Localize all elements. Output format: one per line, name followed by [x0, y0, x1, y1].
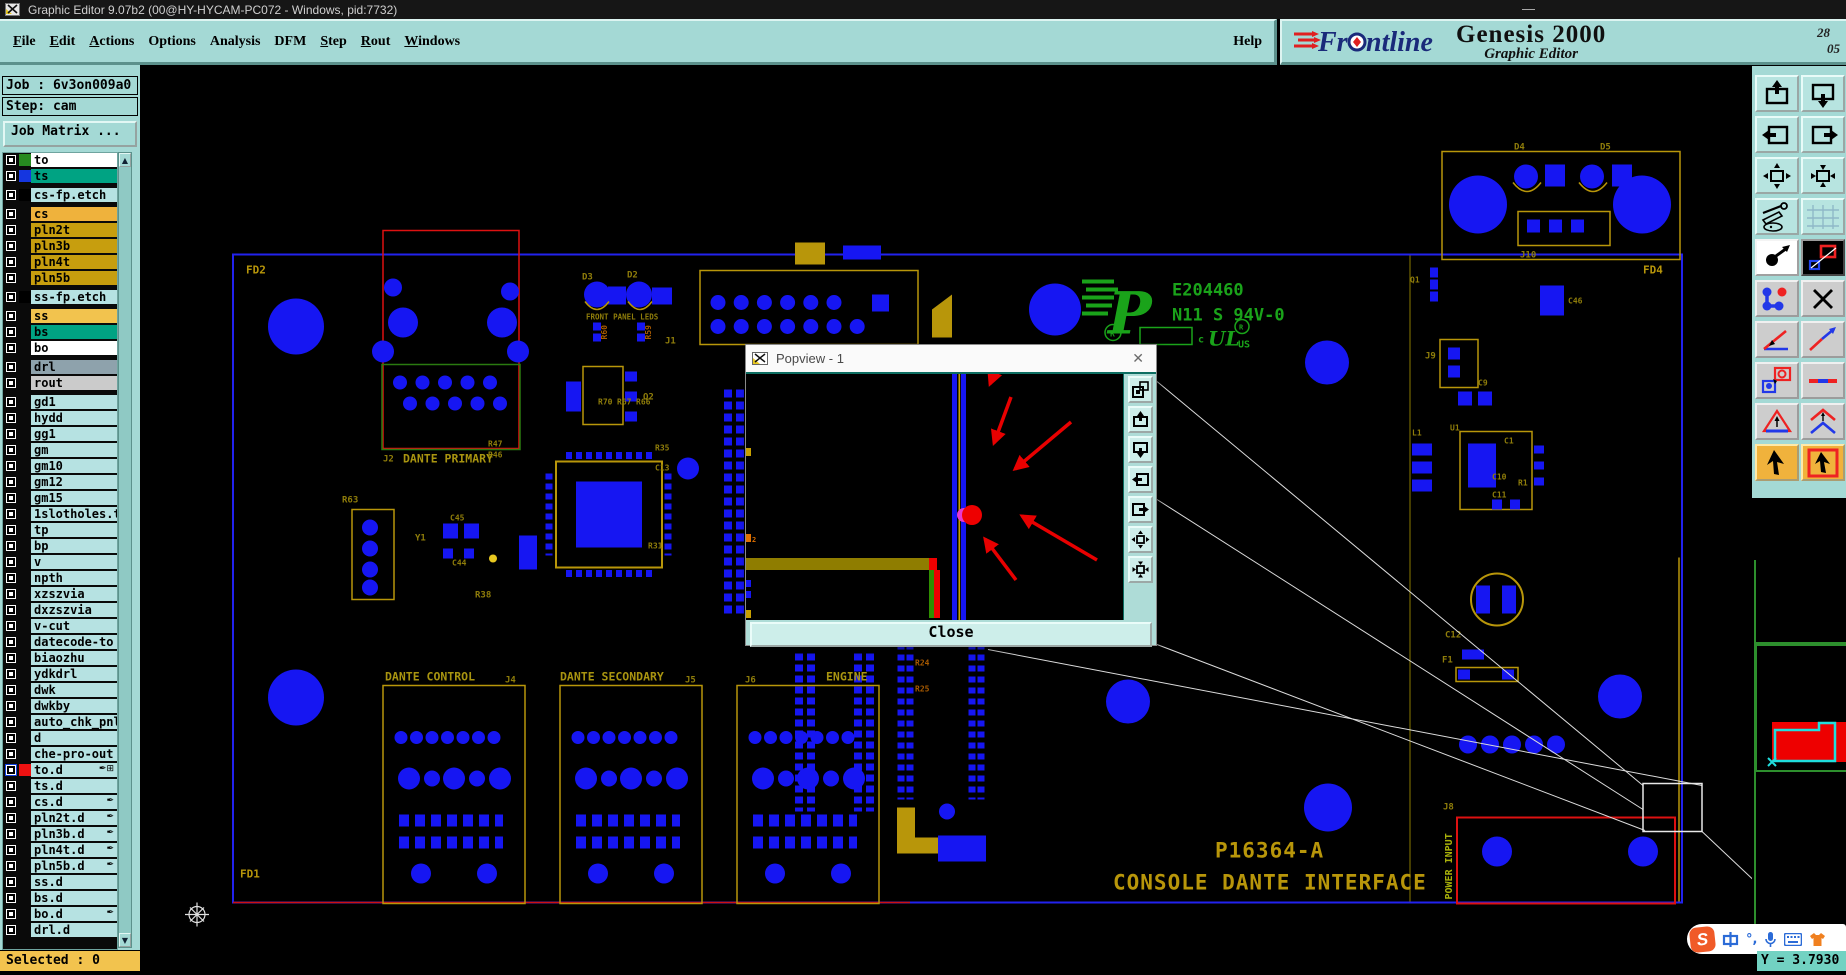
- layer-name[interactable]: cs: [31, 207, 117, 221]
- svg-text:R31: R31: [648, 542, 663, 551]
- svg-text:J4: J4: [505, 676, 516, 686]
- layer-row-icons: ✒: [106, 860, 114, 870]
- brand-panel: Fr ntline Genesis 2000 Graphic Editor 28…: [1280, 19, 1846, 65]
- layer-row[interactable]: v-cut: [3, 619, 117, 633]
- pcb-label-fd4: FD4: [1643, 264, 1663, 277]
- layer-name[interactable]: gd1: [31, 395, 117, 409]
- svg-text:FRONT PANEL LEDS: FRONT PANEL LEDS: [586, 313, 659, 322]
- layer-color-swatch[interactable]: [19, 342, 31, 354]
- left-components: R63 Y1 C45 C44 R38: [342, 496, 537, 601]
- layer-name[interactable]: bs.d: [31, 891, 117, 905]
- layer-name[interactable]: bo.d: [31, 907, 117, 921]
- menu-item[interactable]: Analysis: [210, 34, 261, 50]
- keyboard-icon[interactable]: [1784, 933, 1802, 946]
- layer-list: to ts cs-fp.etch cs pln2t pln3b: [2, 152, 118, 950]
- layer-name[interactable]: ss: [31, 309, 117, 323]
- layer-visibility-checkbox[interactable]: [5, 924, 17, 936]
- netlist-button[interactable]: [1755, 280, 1799, 317]
- layer-visibility-checkbox[interactable]: [5, 620, 17, 632]
- layer-name[interactable]: che-pro-out: [31, 747, 117, 761]
- menu-item[interactable]: File: [13, 34, 36, 50]
- layer-row[interactable]: datecode-to: [3, 635, 117, 649]
- layer-color-swatch[interactable]: [19, 189, 31, 201]
- layer-color-swatch[interactable]: [19, 684, 31, 696]
- layer-color-swatch[interactable]: [19, 652, 31, 664]
- svg-text:C44: C44: [452, 559, 467, 568]
- layer-row[interactable]: bs: [3, 325, 117, 339]
- microphone-icon[interactable]: [1764, 931, 1777, 948]
- layer-row[interactable]: rout: [3, 376, 117, 390]
- layer-name[interactable]: pln4t.d: [31, 843, 117, 857]
- svg-text:J5: J5: [685, 676, 696, 686]
- layer-visibility-checkbox[interactable]: [5, 208, 17, 220]
- shift-down-button[interactable]: [1128, 436, 1153, 463]
- sogou-logo-icon[interactable]: S: [1689, 925, 1716, 952]
- layer-name[interactable]: cs-fp.etch: [31, 188, 117, 202]
- layer-visibility-checkbox[interactable]: [5, 460, 17, 472]
- layer-color-swatch[interactable]: [19, 524, 31, 536]
- layer-visibility-checkbox[interactable]: [5, 170, 17, 182]
- layer-color-swatch[interactable]: [19, 812, 31, 824]
- layer-color-swatch[interactable]: [19, 326, 31, 338]
- menu-item[interactable]: Step: [320, 34, 346, 50]
- power-input-connector: J8 POWER INPUT: [1443, 803, 1675, 904]
- layer-color-swatch[interactable]: [19, 240, 31, 252]
- layer-visibility-checkbox[interactable]: [5, 556, 17, 568]
- popview-titlebar[interactable]: Popview - 1 ✕: [746, 345, 1156, 374]
- layer-name[interactable]: pln2t: [31, 223, 117, 237]
- layer-name[interactable]: gm10: [31, 459, 117, 473]
- layer-visibility-checkbox[interactable]: [5, 700, 17, 712]
- layer-row[interactable]: pln2t: [3, 223, 117, 237]
- ul-mark-block: P R E204460 N11 S 94V-0 c UL R US: [1082, 280, 1285, 351]
- layer-name[interactable]: gm15: [31, 491, 117, 505]
- layer-color-swatch[interactable]: [19, 764, 31, 776]
- layer-color-swatch[interactable]: [19, 908, 31, 920]
- menu-item-help[interactable]: Help: [1233, 34, 1262, 50]
- layer-color-swatch[interactable]: [19, 256, 31, 268]
- layer-name[interactable]: pln3b.d: [31, 827, 117, 841]
- menu-item[interactable]: Actions: [89, 34, 134, 50]
- zoom-area-button[interactable]: [1755, 239, 1799, 276]
- layer-row-icons: ✒: [106, 844, 114, 854]
- layer-visibility-checkbox[interactable]: [5, 154, 17, 166]
- layer-color-swatch[interactable]: [19, 224, 31, 236]
- layer-visibility-checkbox[interactable]: [5, 189, 17, 201]
- layer-row[interactable]: gm10: [3, 459, 117, 473]
- annotation-arrows: [985, 374, 1097, 580]
- layer-name[interactable]: ydkdrl: [31, 667, 117, 681]
- layer-visibility-checkbox[interactable]: [5, 684, 17, 696]
- layer-color-swatch[interactable]: [19, 796, 31, 808]
- layer-color-swatch[interactable]: [19, 272, 31, 284]
- layer-list-scrollbar[interactable]: ▲ ▼: [118, 152, 132, 948]
- layer-row[interactable]: dxzszvia: [3, 603, 117, 617]
- layer-color-swatch[interactable]: [19, 924, 31, 936]
- layer-color-swatch[interactable]: [19, 154, 31, 166]
- layer-row[interactable]: v: [3, 555, 117, 569]
- shift-up-button[interactable]: [1755, 75, 1799, 112]
- q2-component: Q2: [566, 367, 654, 425]
- layer-row[interactable]: tp: [3, 523, 117, 537]
- layer-color-swatch[interactable]: [19, 860, 31, 872]
- layer-visibility-checkbox[interactable]: [5, 876, 17, 888]
- right-panel: [1752, 66, 1846, 971]
- layer-visibility-checkbox[interactable]: [5, 844, 17, 856]
- layer-visibility-checkbox[interactable]: [5, 396, 17, 408]
- layer-name[interactable]: v-cut: [31, 619, 117, 633]
- layer-visibility-checkbox[interactable]: [5, 732, 17, 744]
- svg-text:J9: J9: [1425, 352, 1436, 362]
- layer-row[interactable]: ss: [3, 309, 117, 323]
- svg-text:R38: R38: [475, 591, 491, 601]
- layer-color-swatch[interactable]: [19, 716, 31, 728]
- svg-text:DANTE PRIMARY: DANTE PRIMARY: [403, 452, 493, 466]
- layer-color-swatch[interactable]: [19, 170, 31, 182]
- svg-text:D3: D3: [582, 273, 593, 283]
- origin-marker-icon: [185, 903, 209, 927]
- right-toolbar: [1752, 66, 1846, 498]
- layer-name[interactable]: pln5b.d: [31, 859, 117, 873]
- menu-item[interactable]: DFM: [274, 34, 306, 50]
- layer-name[interactable]: ts.d: [31, 779, 117, 793]
- svg-text:ntline: ntline: [1366, 27, 1433, 58]
- app-icon: [5, 3, 20, 16]
- layer-row[interactable]: cs: [3, 207, 117, 221]
- layer-row[interactable]: hydd: [3, 411, 117, 425]
- clear-marks-button[interactable]: [1801, 280, 1845, 317]
- shift-down-button[interactable]: [1801, 75, 1845, 112]
- layer-color-swatch[interactable]: [19, 668, 31, 680]
- layer-color-swatch[interactable]: [19, 208, 31, 220]
- layer-name[interactable]: cs.d: [31, 795, 117, 809]
- layer-visibility-checkbox[interactable]: [5, 588, 17, 600]
- window-title: Graphic Editor 9.07b2 (00@HY-HYCAM-PC072…: [28, 3, 397, 17]
- top-right-module: D4 D5 J10: [1442, 143, 1680, 261]
- menu-item[interactable]: Edit: [50, 34, 76, 50]
- layer-row[interactable]: to: [3, 153, 117, 167]
- layer-visibility-checkbox[interactable]: [5, 492, 17, 504]
- layer-row[interactable]: gm12: [3, 475, 117, 489]
- layer-name[interactable]: v: [31, 555, 117, 569]
- layer-color-swatch[interactable]: [19, 572, 31, 584]
- popview-window-icon: [752, 352, 768, 365]
- layer-color-swatch[interactable]: [19, 396, 31, 408]
- layer-color-swatch[interactable]: [19, 460, 31, 472]
- svg-text:Fr: Fr: [1317, 27, 1349, 58]
- zoom-contract-button[interactable]: [1128, 556, 1153, 583]
- layer-row[interactable]: gg1: [3, 427, 117, 441]
- layer-visibility-checkbox[interactable]: [5, 652, 17, 664]
- layer-visibility-checkbox[interactable]: [5, 908, 17, 920]
- layer-row-icons: ✒: [106, 908, 114, 918]
- layer-name[interactable]: biaozhu: [31, 651, 117, 665]
- layer-name[interactable]: bs: [31, 325, 117, 339]
- layer-row[interactable]: npth: [3, 571, 117, 585]
- layer-row[interactable]: pln4t: [3, 255, 117, 269]
- layer-color-swatch[interactable]: [19, 780, 31, 792]
- layer-name[interactable]: bp: [31, 539, 117, 553]
- menu-item[interactable]: Rout: [361, 34, 391, 50]
- grid-button[interactable]: [1801, 198, 1845, 235]
- front-panel-leds: D3 D2 FRONT PANEL LEDS R60 R59 J1: [582, 271, 676, 347]
- skin-shirt-icon[interactable]: [1809, 932, 1826, 947]
- layer-visibility-checkbox[interactable]: [5, 224, 17, 236]
- layer-visibility-checkbox[interactable]: [5, 310, 17, 322]
- layer-name[interactable]: gg1: [31, 427, 117, 441]
- layer-name[interactable]: pln4t: [31, 255, 117, 269]
- layer-color-swatch[interactable]: [19, 828, 31, 840]
- layer-visibility-checkbox[interactable]: [5, 604, 17, 616]
- layer-row[interactable]: drl: [3, 360, 117, 374]
- layer-visibility-checkbox[interactable]: [5, 812, 17, 824]
- layer-visibility-checkbox[interactable]: [5, 796, 17, 808]
- shift-right-button[interactable]: [1801, 116, 1845, 153]
- overview-panel: [1752, 560, 1846, 971]
- layer-name[interactable]: dwkby: [31, 699, 117, 713]
- popview-canvas[interactable]: 2: [746, 374, 1124, 620]
- layer-color-swatch[interactable]: [19, 636, 31, 648]
- layer-row[interactable]: 1slotholes.t: [3, 507, 117, 521]
- svg-text:D5: D5: [1600, 143, 1611, 153]
- layer-row-icons: ✒⊞: [99, 764, 114, 774]
- scroll-up-icon[interactable]: ▲: [119, 153, 131, 167]
- minimize-button[interactable]: —: [1522, 1, 1535, 16]
- select-cursor-boxed-button[interactable]: [1801, 444, 1845, 481]
- contract-view-button[interactable]: [1801, 157, 1845, 194]
- layer-row[interactable]: d: [3, 731, 117, 745]
- layer-visibility-checkbox[interactable]: [5, 780, 17, 792]
- layer-row[interactable]: pln2t.d ✒: [3, 811, 117, 825]
- layer-row[interactable]: pln4t.d ✒: [3, 843, 117, 857]
- layer-name[interactable]: bo: [31, 341, 117, 355]
- segment-button[interactable]: [1801, 362, 1845, 399]
- layer-name[interactable]: xzszvia: [31, 587, 117, 601]
- layer-row[interactable]: xzszvia: [3, 587, 117, 601]
- menu-item[interactable]: Windows: [404, 34, 460, 50]
- svg-text:J10: J10: [1520, 251, 1536, 261]
- layer-row[interactable]: che-pro-out: [3, 747, 117, 761]
- layer-name[interactable]: ss-fp.etch: [31, 290, 117, 304]
- layer-row-icons: ✒: [106, 812, 114, 822]
- layer-visibility-checkbox[interactable]: [5, 668, 17, 680]
- layer-name[interactable]: tp: [31, 523, 117, 537]
- layer-name[interactable]: drl.d: [31, 923, 117, 937]
- y-coordinate-readout: Y = 3.7930: [1757, 951, 1846, 971]
- close-icon[interactable]: ✕: [1132, 350, 1144, 367]
- layer-name[interactable]: 1slotholes.t: [31, 507, 117, 521]
- layer-visibility-checkbox[interactable]: [5, 428, 17, 440]
- layer-visibility-checkbox[interactable]: [5, 764, 17, 776]
- layer-color-swatch[interactable]: [19, 892, 31, 904]
- highlight-dot: [957, 505, 982, 525]
- truesize-chevron-button[interactable]: [1801, 403, 1845, 440]
- layer-name[interactable]: pln2t.d: [31, 811, 117, 825]
- scroll-down-icon[interactable]: ▼: [119, 933, 131, 947]
- layer-row[interactable]: ts: [3, 169, 117, 183]
- sidebar: Job : 6v3on009a0 Step: cam Job Matrix ..…: [0, 65, 140, 971]
- layer-row[interactable]: pln3b.d ✒: [3, 827, 117, 841]
- layer-color-swatch[interactable]: [19, 588, 31, 600]
- svg-text:C10: C10: [1492, 473, 1507, 482]
- layer-visibility-checkbox[interactable]: [5, 476, 17, 488]
- layer-visibility-checkbox[interactable]: [5, 748, 17, 760]
- layer-row[interactable]: auto_chk_pnl: [3, 715, 117, 729]
- layer-visibility-checkbox[interactable]: [5, 860, 17, 872]
- layer-row[interactable]: dwkby: [3, 699, 117, 713]
- svg-text:C9: C9: [1478, 379, 1488, 388]
- svg-text:J1: J1: [665, 337, 676, 347]
- layer-visibility-checkbox[interactable]: [5, 361, 17, 373]
- layer-row[interactable]: cs-fp.etch: [3, 188, 117, 202]
- layer-row[interactable]: gd1: [3, 395, 117, 409]
- layer-visibility-checkbox[interactable]: [5, 240, 17, 252]
- punctuation-mode-icon[interactable]: °,: [1746, 932, 1757, 947]
- layer-visibility-checkbox[interactable]: [5, 636, 17, 648]
- layer-color-swatch[interactable]: [19, 377, 31, 389]
- svg-text:D2: D2: [627, 271, 638, 281]
- layer-visibility-checkbox[interactable]: [5, 540, 17, 552]
- layer-visibility-checkbox[interactable]: [5, 256, 17, 268]
- layer-color-swatch[interactable]: [19, 428, 31, 440]
- layer-row[interactable]: bo: [3, 341, 117, 355]
- layer-color-swatch[interactable]: [19, 310, 31, 322]
- measure-line-button[interactable]: [1801, 321, 1845, 358]
- layer-color-swatch[interactable]: [19, 492, 31, 504]
- popview-close-button[interactable]: Close: [750, 622, 1152, 647]
- layer-name[interactable]: auto_chk_pnl: [31, 715, 117, 729]
- popview-window[interactable]: Popview - 1 ✕ 2: [745, 344, 1157, 646]
- layer-visibility-checkbox[interactable]: [5, 412, 17, 424]
- layer-visibility-checkbox[interactable]: [5, 892, 17, 904]
- layer-row[interactable]: pln3b: [3, 239, 117, 253]
- layer-row[interactable]: ss.d: [3, 875, 117, 889]
- pcb-label-fd2: FD2: [246, 264, 266, 277]
- layer-visibility-checkbox[interactable]: [5, 508, 17, 520]
- layer-name[interactable]: rout: [31, 376, 117, 390]
- layer-visibility-checkbox[interactable]: [5, 572, 17, 584]
- layer-visibility-checkbox[interactable]: [5, 716, 17, 728]
- layer-name[interactable]: datecode-to: [31, 635, 117, 649]
- layer-visibility-checkbox[interactable]: [5, 291, 17, 303]
- svg-text:R25: R25: [915, 685, 930, 694]
- top-center-connector: [700, 243, 952, 345]
- truesize-triangle-button[interactable]: [1755, 403, 1799, 440]
- shift-up-button[interactable]: [1128, 406, 1153, 433]
- layer-color-swatch[interactable]: [19, 556, 31, 568]
- layer-color-swatch[interactable]: [19, 508, 31, 520]
- layer-name[interactable]: dwk: [31, 683, 117, 697]
- layer-name[interactable]: hydd: [31, 411, 117, 425]
- layer-row[interactable]: ts.d: [3, 779, 117, 793]
- dante-primary-connector: J2 DANTE PRIMARY: [372, 279, 529, 466]
- layer-name[interactable]: to: [31, 153, 117, 167]
- layer-row[interactable]: ydkdrl: [3, 667, 117, 681]
- layer-visibility-checkbox[interactable]: [5, 342, 17, 354]
- layer-row[interactable]: bp: [3, 539, 117, 553]
- layer-name[interactable]: pln3b: [31, 239, 117, 253]
- layer-color-swatch[interactable]: [19, 844, 31, 856]
- zoom-expand-button[interactable]: [1128, 526, 1153, 553]
- layer-row[interactable]: dwk: [3, 683, 117, 697]
- layer-row[interactable]: pln5b: [3, 271, 117, 285]
- layer-color-swatch[interactable]: [19, 732, 31, 744]
- layer-color-swatch[interactable]: [19, 748, 31, 760]
- job-matrix-button[interactable]: Job Matrix ...: [3, 121, 137, 147]
- layer-name[interactable]: drl: [31, 360, 117, 374]
- shift-left-button[interactable]: [1755, 116, 1799, 153]
- layer-row[interactable]: bo.d ✒: [3, 907, 117, 921]
- layer-visibility-checkbox[interactable]: [5, 326, 17, 338]
- language-mode-icon[interactable]: [1722, 931, 1739, 948]
- svg-text:R59: R59: [644, 325, 653, 340]
- svg-text:Y1: Y1: [415, 534, 426, 544]
- pad-compare-button[interactable]: [1755, 362, 1799, 399]
- menu-item[interactable]: Options: [148, 34, 195, 50]
- svg-text:UL: UL: [1208, 327, 1240, 351]
- svg-text:D4: D4: [1514, 143, 1525, 153]
- layer-name[interactable]: gm12: [31, 475, 117, 489]
- layer-visibility-checkbox[interactable]: [5, 444, 17, 456]
- layer-color-swatch[interactable]: [19, 876, 31, 888]
- shift-left-button[interactable]: [1128, 466, 1153, 493]
- layer-color-swatch[interactable]: [19, 444, 31, 456]
- copy-view-button[interactable]: [1128, 376, 1153, 403]
- layer-color-swatch[interactable]: [19, 291, 31, 303]
- select-cursor-button[interactable]: [1755, 444, 1799, 481]
- layer-visibility-checkbox[interactable]: [5, 272, 17, 284]
- layer-color-swatch[interactable]: [19, 361, 31, 373]
- svg-text:POWER INPUT: POWER INPUT: [1444, 833, 1455, 899]
- layer-color-swatch[interactable]: [19, 604, 31, 616]
- shift-right-button[interactable]: [1128, 496, 1153, 523]
- layer-row[interactable]: bs.d: [3, 891, 117, 905]
- setup-tools-button[interactable]: [1755, 198, 1799, 235]
- measure-angle-button[interactable]: [1755, 321, 1799, 358]
- layer-row[interactable]: gm15: [3, 491, 117, 505]
- layer-color-swatch[interactable]: [19, 620, 31, 632]
- window-titlebar[interactable]: Graphic Editor 9.07b2 (00@HY-HYCAM-PC072…: [0, 0, 1846, 19]
- layer-name[interactable]: gm: [31, 443, 117, 457]
- layer-color-swatch[interactable]: [19, 412, 31, 424]
- layer-visibility-checkbox[interactable]: [5, 828, 17, 840]
- layer-name[interactable]: dxzszvia: [31, 603, 117, 617]
- layer-name[interactable]: d: [31, 731, 117, 745]
- layer-name[interactable]: ss.d: [31, 875, 117, 889]
- svg-text:R70: R70: [598, 398, 613, 407]
- layer-row[interactable]: drl.d: [3, 923, 117, 937]
- layer-visibility-checkbox[interactable]: [5, 377, 17, 389]
- layer-name[interactable]: pln5b: [31, 271, 117, 285]
- layer-compare-button[interactable]: [1801, 239, 1845, 276]
- layer-row[interactable]: biaozhu: [3, 651, 117, 665]
- layer-visibility-checkbox[interactable]: [5, 524, 17, 536]
- layer-name[interactable]: ts: [31, 169, 117, 183]
- layer-color-swatch[interactable]: [19, 700, 31, 712]
- layer-row[interactable]: to.d ✒⊞: [3, 763, 117, 777]
- layer-color-swatch[interactable]: [19, 476, 31, 488]
- expand-view-button[interactable]: [1755, 157, 1799, 194]
- layer-row[interactable]: gm: [3, 443, 117, 457]
- layer-color-swatch[interactable]: [19, 540, 31, 552]
- product-name: Genesis 2000: [1456, 21, 1606, 49]
- layer-row[interactable]: pln5b.d ✒: [3, 859, 117, 873]
- pcb-part-number: P16364-A: [1215, 839, 1324, 863]
- layer-row[interactable]: cs.d ✒: [3, 795, 117, 809]
- svg-text:J6: J6: [745, 676, 756, 686]
- layer-name[interactable]: npth: [31, 571, 117, 585]
- layer-row[interactable]: ss-fp.etch: [3, 290, 117, 304]
